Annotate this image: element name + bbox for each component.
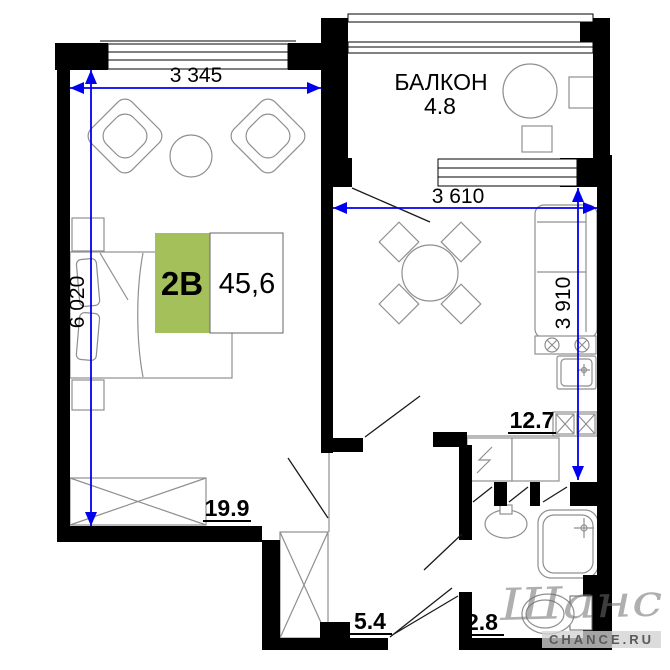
hall-furniture xyxy=(280,452,329,638)
nightstand-top-icon xyxy=(72,218,104,251)
bath-door-leaf xyxy=(424,534,462,570)
living-area-label: 19.9 xyxy=(205,495,250,521)
cabinet-icon xyxy=(512,438,559,481)
shower-icon xyxy=(538,510,598,578)
hob-icon xyxy=(553,412,597,436)
kitchen-furniture xyxy=(379,205,597,481)
armchair-right-icon xyxy=(227,95,309,177)
dim-kitchen-width-label: 3 610 xyxy=(432,185,485,208)
balcony-name: БАЛКОН xyxy=(394,69,487,95)
dim-left-height-label: 6 020 xyxy=(66,276,89,329)
apartment-badge: 2В 45,6 xyxy=(155,233,283,333)
balcony-furniture xyxy=(503,64,595,152)
kitchen-sink-icon xyxy=(557,356,596,389)
balcony-label: БАЛКОН 4.8 xyxy=(394,69,487,119)
dining-table-icon xyxy=(402,245,458,301)
coffee-table-icon xyxy=(170,135,212,177)
balcony-door-leaf xyxy=(352,188,430,222)
bath-area-label: 2.8 xyxy=(466,609,498,635)
apartment-type-label: 2В xyxy=(161,265,203,302)
balcony-table-icon xyxy=(503,64,557,118)
kitchen-window-icon xyxy=(438,159,577,186)
washing-machine-icon xyxy=(467,438,512,481)
stove-icon xyxy=(535,336,596,354)
hall-area-label: 5.4 xyxy=(354,608,386,634)
kitchen-area-label: 12.7 xyxy=(510,407,555,433)
nightstand-bottom-icon xyxy=(72,380,104,410)
kitchen-door-leaf xyxy=(365,396,420,437)
living-door-leaf xyxy=(288,458,328,518)
balcony-stool-right-icon xyxy=(569,77,595,108)
apartment-total-area: 45,6 xyxy=(219,268,275,300)
dim-top-width-label: 3 345 xyxy=(170,64,223,87)
floor-plan: 3 345 6 020 3 610 3 910 БАЛКОН 4.8 2В 45… xyxy=(0,0,670,670)
bathroom-fixtures xyxy=(485,505,598,578)
wc-door-leaf xyxy=(394,596,458,634)
armchair-left-icon xyxy=(84,95,166,177)
floor-plan-drawing: 3 345 6 020 3 610 3 910 БАЛКОН 4.8 2В 45… xyxy=(0,0,670,670)
balcony-area: 4.8 xyxy=(424,93,456,119)
balcony-parapet-icon xyxy=(348,14,593,22)
balcony-glazing-icon xyxy=(348,42,593,53)
toilet-icon xyxy=(522,594,592,634)
balcony-stool-bottom-icon xyxy=(522,126,552,152)
entrance-door-leaf xyxy=(390,588,452,637)
dim-kitchen-height-label: 3 910 xyxy=(552,277,575,330)
washbasin-icon xyxy=(485,505,527,538)
